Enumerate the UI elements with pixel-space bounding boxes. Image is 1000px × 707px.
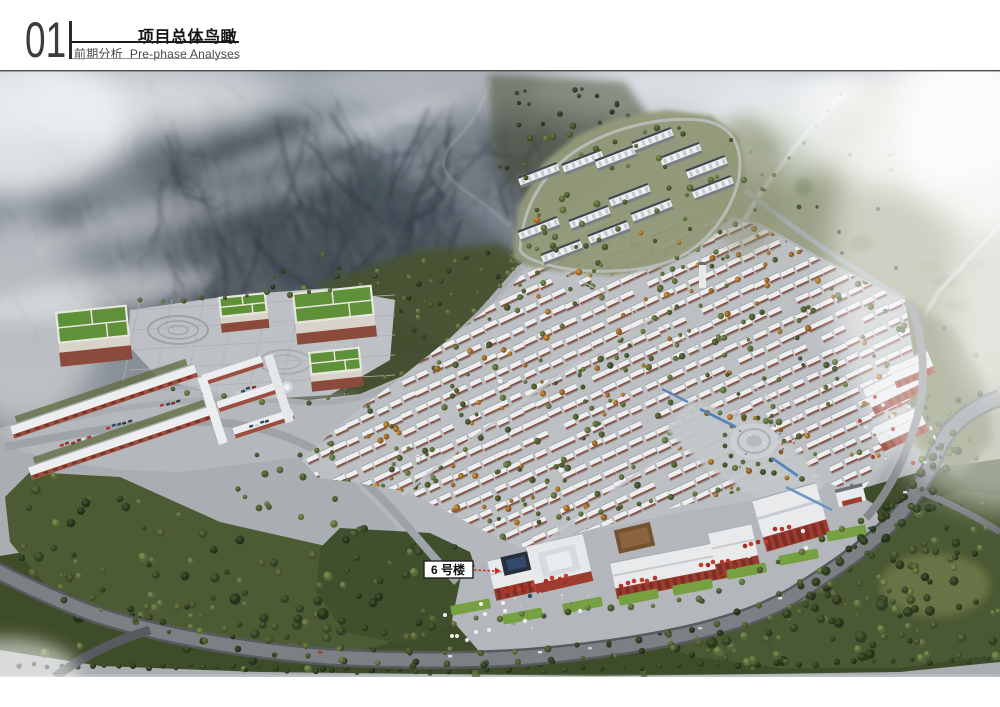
svg-text:6 号楼: 6 号楼 xyxy=(431,562,465,577)
